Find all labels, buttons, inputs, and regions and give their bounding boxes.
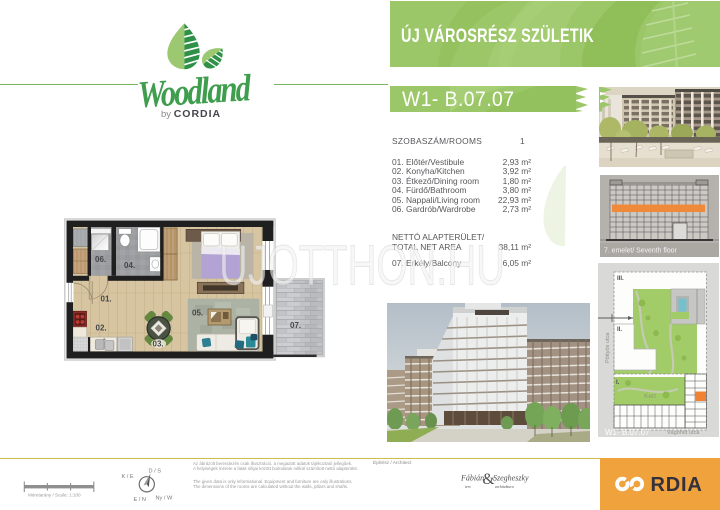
svg-text:II.: II. [617,327,622,333]
svg-text:E / N: E / N [134,497,146,503]
svg-text:03.: 03. [153,340,164,349]
svg-text:Vágóhíd utca: Vágóhíd utca [667,430,700,436]
svg-text:D / S: D / S [149,469,162,475]
svg-text:Fábián: Fábián [460,474,484,483]
svg-text:07.: 07. [290,321,301,330]
svg-text:Ny / W: Ny / W [156,496,173,502]
svg-text:W1- B.07.07: W1- B.07.07 [605,428,650,437]
svg-text:K / E: K / E [122,474,134,480]
svg-text:I.: I. [616,380,620,386]
svg-text:terv: terv [465,485,471,489]
svg-text:05.: 05. [192,309,203,318]
svg-text:Pöttyös utca: Pöttyös utca [605,332,611,363]
svg-text:architektura: architektura [495,485,514,489]
svg-text:Méretarány / Scale: 1:100: Méretarány / Scale: 1:100 [28,493,81,498]
svg-text:III.: III. [617,276,624,282]
svg-text:RDIA: RDIA [651,474,703,496]
svg-text:02.: 02. [96,324,107,333]
svg-text:04.: 04. [124,261,135,270]
svg-text:7. emelet/ Seventh floor: 7. emelet/ Seventh floor [604,248,677,255]
svg-text:Kert: Kert [644,393,656,400]
svg-text:06.: 06. [95,255,106,264]
svg-text:01.: 01. [101,295,112,304]
svg-text:Szegheszky: Szegheszky [493,474,529,483]
